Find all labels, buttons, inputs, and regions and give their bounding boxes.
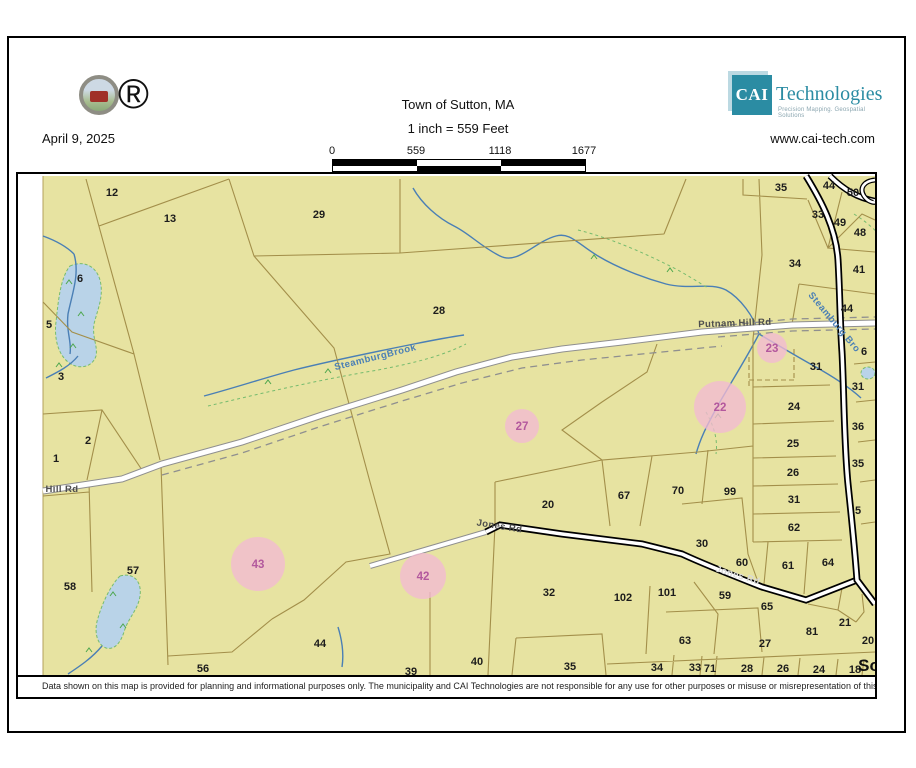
parcel-number-label: 61 [782, 560, 794, 572]
scalebar-tick: 1677 [572, 145, 596, 157]
parcel-number-label: 62 [788, 522, 800, 534]
parcel-number-label: 65 [761, 601, 773, 613]
parcel-map[interactable]: 2723224342121329286532158575644394035322… [18, 174, 875, 675]
parcel-number-label: 24 [788, 401, 801, 413]
parcel-number-label: 41 [853, 264, 865, 276]
cai-logo-name: Technologies [776, 83, 882, 106]
map-disclaimer: Data shown on this map is provided for p… [18, 675, 875, 697]
parcel-number-label: 2 [85, 435, 91, 447]
parcel-number-label: 60 [736, 557, 748, 569]
parcel-number-label: 44 [841, 303, 854, 315]
parcel-number-label: 28 [433, 305, 445, 317]
highlighted-parcel-number: 42 [417, 571, 430, 583]
parcel-number-label: 30 [696, 538, 708, 550]
parcel-number-label: 6 [77, 273, 83, 285]
map-edge-label: So [858, 656, 875, 675]
parcel-number-label: 56 [197, 663, 209, 675]
parcel-number-label: 27 [759, 638, 771, 650]
parcel-number-label: 101 [658, 587, 676, 599]
parcel-number-label: 21 [839, 617, 851, 629]
parcel-number-label: 81 [806, 626, 818, 638]
registered-trademark-symbol: ® [118, 70, 149, 118]
parcel-number-label: 35 [852, 458, 864, 470]
parcel-number-label: 59 [719, 590, 731, 602]
map-scale-text: 1 inch = 559 Feet [330, 121, 586, 136]
parcel-number-label: 44 [823, 180, 836, 192]
map-title: Town of Sutton, MA [330, 97, 586, 112]
cai-technologies-logo: CAI Technologies Precision Mapping. Geos… [728, 71, 888, 121]
cai-logo-square: CAI [732, 75, 772, 115]
parcel-number-label: 13 [164, 213, 176, 225]
parcel-number-label: 31 [852, 381, 864, 393]
parcel-number-label: 28 [741, 663, 753, 675]
parcel-number-label: 40 [471, 656, 483, 668]
town-seal-barn [90, 91, 108, 102]
highlighted-parcel-number: 43 [252, 559, 265, 571]
parcel-number-label: 48 [854, 227, 866, 239]
parcel-number-label: 71 [704, 663, 716, 675]
scale-bar-segment [501, 160, 585, 166]
scalebar-tick: 559 [407, 145, 425, 157]
parcel-number-label: 99 [724, 486, 736, 498]
parcel-number-label: 26 [787, 467, 799, 479]
scalebar-labels: 0 559 1118 1677 [332, 145, 584, 157]
parcel-number-label: 5 [46, 319, 52, 331]
parcel-number-label: 34 [789, 258, 802, 270]
highlighted-parcel-number: 22 [714, 402, 727, 414]
parcel-number-label: 70 [672, 485, 684, 497]
parcel-number-label: 5 [855, 505, 861, 517]
parcel-number-label: 29 [313, 209, 325, 221]
scale-bar [332, 159, 586, 172]
parcel-number-label: 25 [787, 438, 799, 450]
parcel-number-label: 35 [775, 182, 787, 194]
map-land-area [43, 176, 875, 675]
parcel-number-label: 12 [106, 187, 118, 199]
map-frame: 2723224342121329286532158575644394035322… [16, 172, 877, 699]
parcel-number-label: 1 [53, 453, 59, 465]
scalebar-tick: 1118 [489, 145, 512, 157]
road-name-label: Hill Rd [46, 484, 79, 495]
cai-website-url: www.cai-tech.com [700, 131, 875, 146]
scalebar-tick: 0 [329, 145, 335, 157]
parcel-number-label: 50 [847, 187, 859, 199]
parcel-number-label: 58 [64, 581, 76, 593]
parcel-number-label: 35 [564, 661, 576, 673]
parcel-number-label: 3 [58, 371, 64, 383]
parcel-number-label: 20 [542, 499, 554, 511]
parcel-number-label: 39 [405, 666, 417, 675]
highlighted-parcel-number: 27 [516, 421, 529, 433]
parcel-number-label: 64 [822, 557, 835, 569]
parcel-number-label: 44 [314, 638, 327, 650]
parcel-number-label: 31 [810, 361, 822, 373]
parcel-number-label: 49 [834, 217, 846, 229]
parcel-number-label: 31 [788, 494, 800, 506]
cai-logo-tagline: Precision Mapping. Geospatial Solutions [778, 107, 888, 119]
parcel-number-label: 67 [618, 490, 630, 502]
map-date: April 9, 2025 [42, 131, 115, 146]
parcel-number-label: 57 [127, 565, 139, 577]
parcel-number-label: 32 [543, 587, 555, 599]
town-seal-logo [79, 75, 119, 115]
parcel-number-label: 36 [852, 421, 864, 433]
parcel-number-label: 20 [862, 635, 874, 647]
highlighted-parcel-number: 23 [766, 343, 779, 355]
scale-bar-segment [417, 166, 501, 172]
scale-bar-segment [333, 160, 417, 166]
parcel-number-label: 33 [689, 662, 701, 674]
parcel-number-label: 24 [813, 664, 826, 675]
parcel-number-label: 26 [777, 663, 789, 675]
parcel-number-label: 102 [614, 592, 632, 604]
parcel-number-label: 33 [812, 209, 824, 221]
parcel-number-label: 34 [651, 662, 664, 674]
parcel-number-label: 63 [679, 635, 691, 647]
